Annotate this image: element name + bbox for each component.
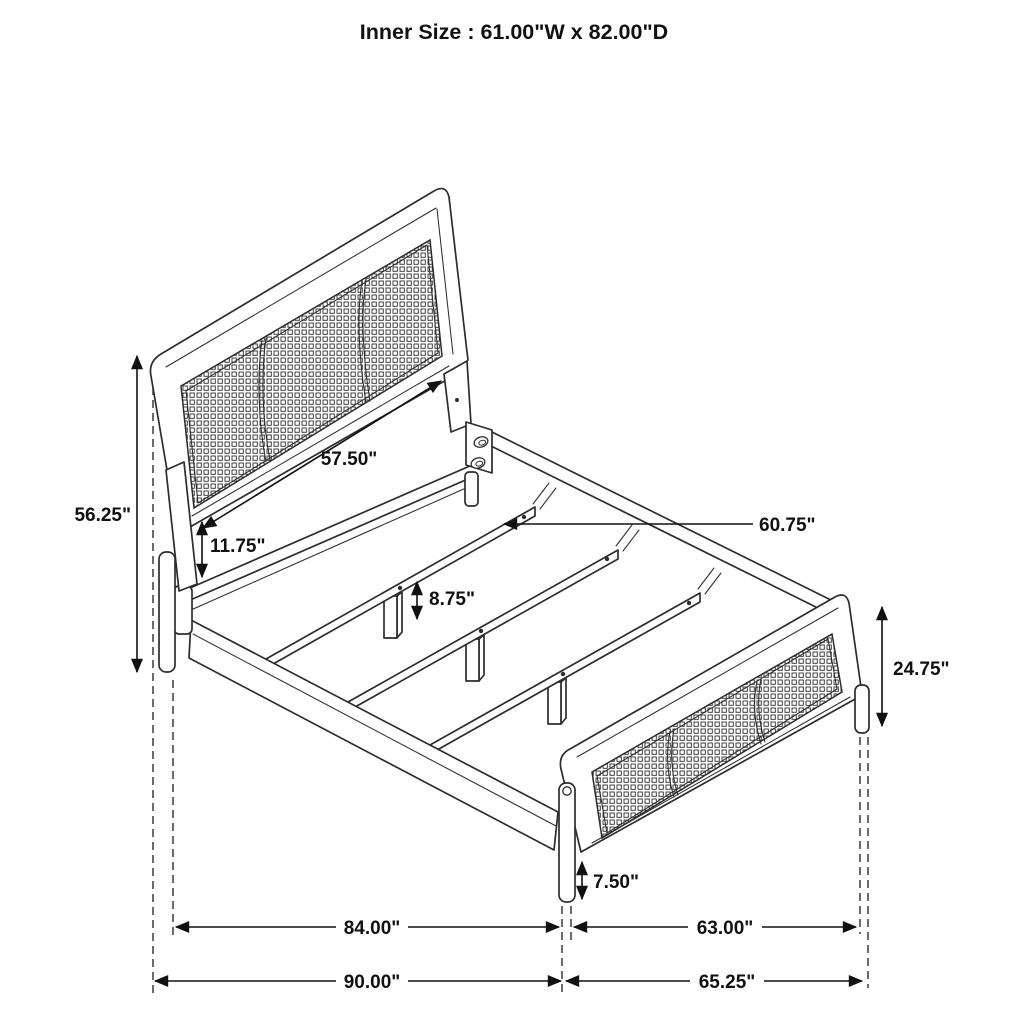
- headboard-right-leg: [465, 472, 478, 506]
- bed-dimension-diagram: 56.25" 57.50" 11.75" 60.75" 8.75" 24.75"…: [0, 0, 1024, 1024]
- dim-label-slat-length: 60.75": [759, 515, 816, 536]
- dim-label-side-rail-length: 84.00": [344, 918, 401, 939]
- dim-label-overall-width: 65.25": [699, 972, 756, 993]
- dim-slat-support-height: 8.75": [417, 582, 475, 619]
- dim-label-headboard-width: 57.50": [321, 449, 378, 470]
- slat-1: [266, 507, 535, 668]
- dim-footboard-height: 24.75": [882, 607, 950, 726]
- side-rail-end-cap: [174, 586, 192, 634]
- dim-label-under-headboard-clearance: 11.75": [210, 536, 266, 557]
- footboard-right-leg: [855, 685, 869, 733]
- dim-label-slat-support-height: 8.75": [429, 589, 475, 610]
- dim-label-headboard-height: 56.25": [74, 505, 131, 526]
- dim-overall-width: 65.25": [566, 972, 862, 993]
- dim-label-overall-length: 90.00": [344, 972, 401, 993]
- dim-label-footboard-leg-height: 7.50": [593, 872, 639, 893]
- dim-footboard-leg-height: 7.50": [582, 862, 639, 899]
- dim-slat-length: 60.75": [504, 515, 816, 536]
- dim-headboard-height: 56.25": [74, 356, 137, 672]
- leg-dowel: [563, 787, 571, 795]
- headboard-left-leg: [159, 552, 175, 672]
- dim-side-rail-length: 84.00": [176, 918, 559, 939]
- diagram-canvas: 56.25" 57.50" 11.75" 60.75" 8.75" 24.75"…: [0, 0, 1024, 1024]
- headboard-right-stile: [444, 361, 471, 432]
- footboard: [559, 595, 869, 902]
- dim-footboard-span: 63.00": [574, 918, 856, 939]
- footboard-front-leg: [559, 783, 575, 902]
- page-title: Inner Size : 61.00"W x 82.00"D: [360, 20, 668, 44]
- dim-label-footboard-height: 24.75": [893, 659, 950, 680]
- dim-label-footboard-span: 63.00": [697, 918, 754, 939]
- dim-overall-length: 90.00": [155, 972, 561, 993]
